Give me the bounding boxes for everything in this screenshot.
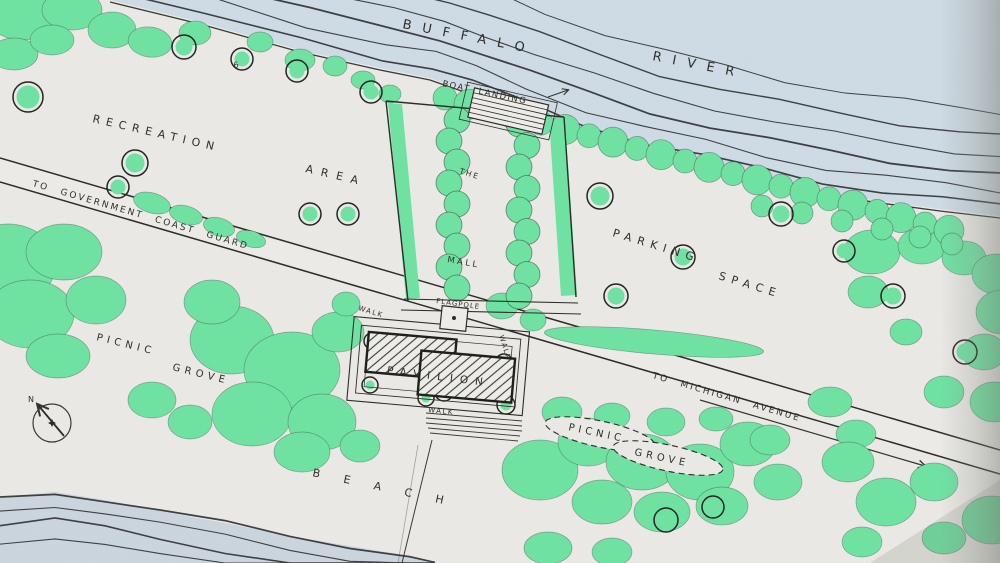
- mall-row-tree: [506, 283, 532, 309]
- specimen-tree: [126, 154, 145, 173]
- shore-hedge-tree: [694, 152, 724, 182]
- tree-cluster: [332, 292, 360, 316]
- tree-cluster: [128, 382, 176, 418]
- shore-hedge-tree: [721, 162, 745, 186]
- park-plan-map: BUFFALO RIVER BOAT LANDING RECREATION AR…: [0, 0, 1000, 563]
- photo-edge-shadow: [940, 0, 1000, 563]
- shore-hedge-tree: [791, 202, 813, 224]
- tree-cluster: [754, 464, 802, 500]
- specimen-tree: [658, 512, 675, 529]
- tree-cluster: [822, 442, 874, 482]
- specimen-tree: [17, 86, 40, 109]
- specimen-tree: [837, 244, 852, 259]
- tree-cluster: [323, 56, 347, 76]
- flagpole-plot: [440, 306, 468, 332]
- specimen-tree: [885, 288, 902, 305]
- tree-cluster: [696, 487, 748, 525]
- tree-cluster: [856, 478, 916, 526]
- tree-cluster: [592, 538, 632, 563]
- tree-cluster: [312, 312, 364, 352]
- shore-hedge-tree: [673, 149, 697, 173]
- compass-north-label: N: [28, 395, 34, 404]
- shore-hedge-tree: [817, 187, 841, 211]
- tree-cluster: [30, 25, 74, 55]
- tree-cluster: [66, 276, 126, 324]
- shore-hedge-tree: [577, 124, 601, 148]
- shore-hedge-tree: [909, 226, 931, 248]
- tree-cluster: [26, 334, 90, 378]
- tree-cluster: [699, 407, 733, 431]
- tree-cluster: [340, 430, 380, 462]
- tree-cluster: [26, 224, 102, 280]
- shore-hedge-tree: [742, 165, 772, 195]
- specimen-tree: [773, 206, 790, 223]
- map-canvas: BUFFALO RIVER BOAT LANDING RECREATION AR…: [0, 0, 1000, 563]
- tree-cluster: [274, 432, 330, 472]
- tree-cluster: [890, 319, 922, 345]
- tree-cluster: [572, 480, 632, 524]
- specimen-tree: [176, 39, 193, 56]
- tree-cluster: [247, 32, 273, 52]
- shore-hedge-tree: [769, 174, 793, 198]
- specimen-tree: [341, 207, 356, 222]
- shore-hedge-tree: [831, 210, 853, 232]
- specimen-tree: [111, 180, 126, 195]
- tree-cluster: [524, 532, 572, 563]
- specimen-tree: [366, 381, 375, 390]
- tree-cluster: [842, 527, 882, 557]
- tree-cluster: [184, 280, 240, 324]
- tree-cluster: [212, 382, 292, 446]
- flagpole-dot: [452, 316, 456, 320]
- tree-cluster: [808, 387, 852, 417]
- specimen-tree: [591, 187, 610, 206]
- specimen-tree: [364, 85, 379, 100]
- shore-hedge-tree: [646, 140, 676, 170]
- tree-cluster: [844, 230, 900, 274]
- shore-hedge-tree: [625, 136, 649, 160]
- tree-cluster: [168, 405, 212, 439]
- shore-hedge-tree: [598, 127, 628, 157]
- specimen-tree: [290, 64, 305, 79]
- tree-cluster: [750, 425, 790, 455]
- specimen-tree: [608, 288, 625, 305]
- specimen-tree: [303, 207, 318, 222]
- tree-cluster: [647, 408, 685, 436]
- mall-row-tree: [444, 275, 470, 301]
- specimen-tree: [706, 500, 721, 515]
- shore-hedge-tree: [871, 218, 893, 240]
